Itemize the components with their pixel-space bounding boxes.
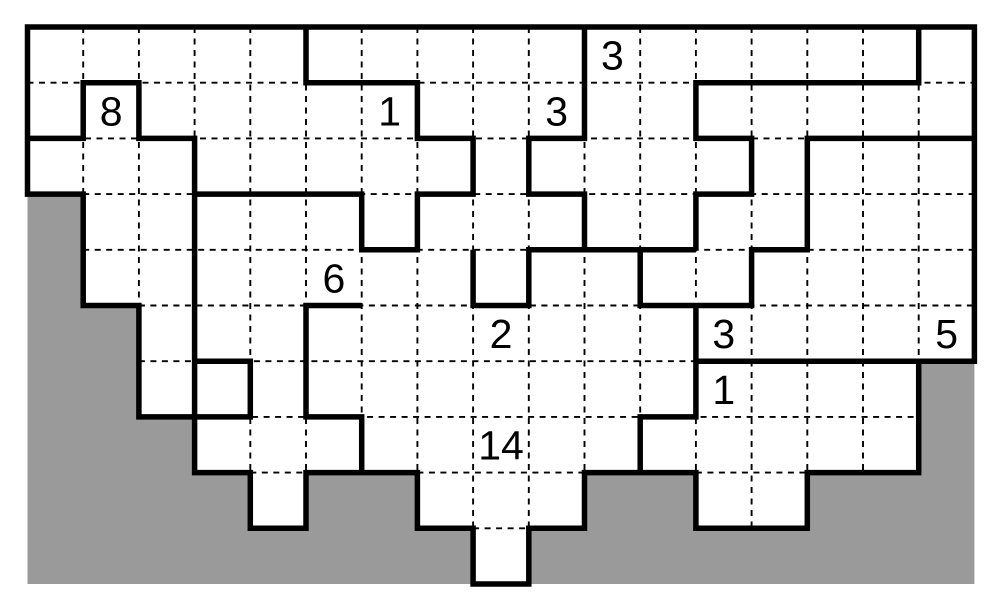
clue-number: 1 [378, 88, 401, 134]
clue-number: 2 [490, 311, 513, 357]
clue-number: 1 [712, 367, 735, 413]
puzzle-board[interactable]: 81336235114 [0, 0, 1000, 611]
clue-number: 3 [601, 33, 624, 79]
clue-number: 5 [935, 311, 958, 357]
clue-number: 6 [322, 255, 345, 301]
clue-number: 14 [478, 423, 524, 469]
clue-number: 3 [712, 311, 735, 357]
clue-number: 8 [100, 88, 123, 134]
puzzle-page: 81336235114 [0, 0, 1000, 611]
clue-number: 3 [545, 88, 568, 134]
